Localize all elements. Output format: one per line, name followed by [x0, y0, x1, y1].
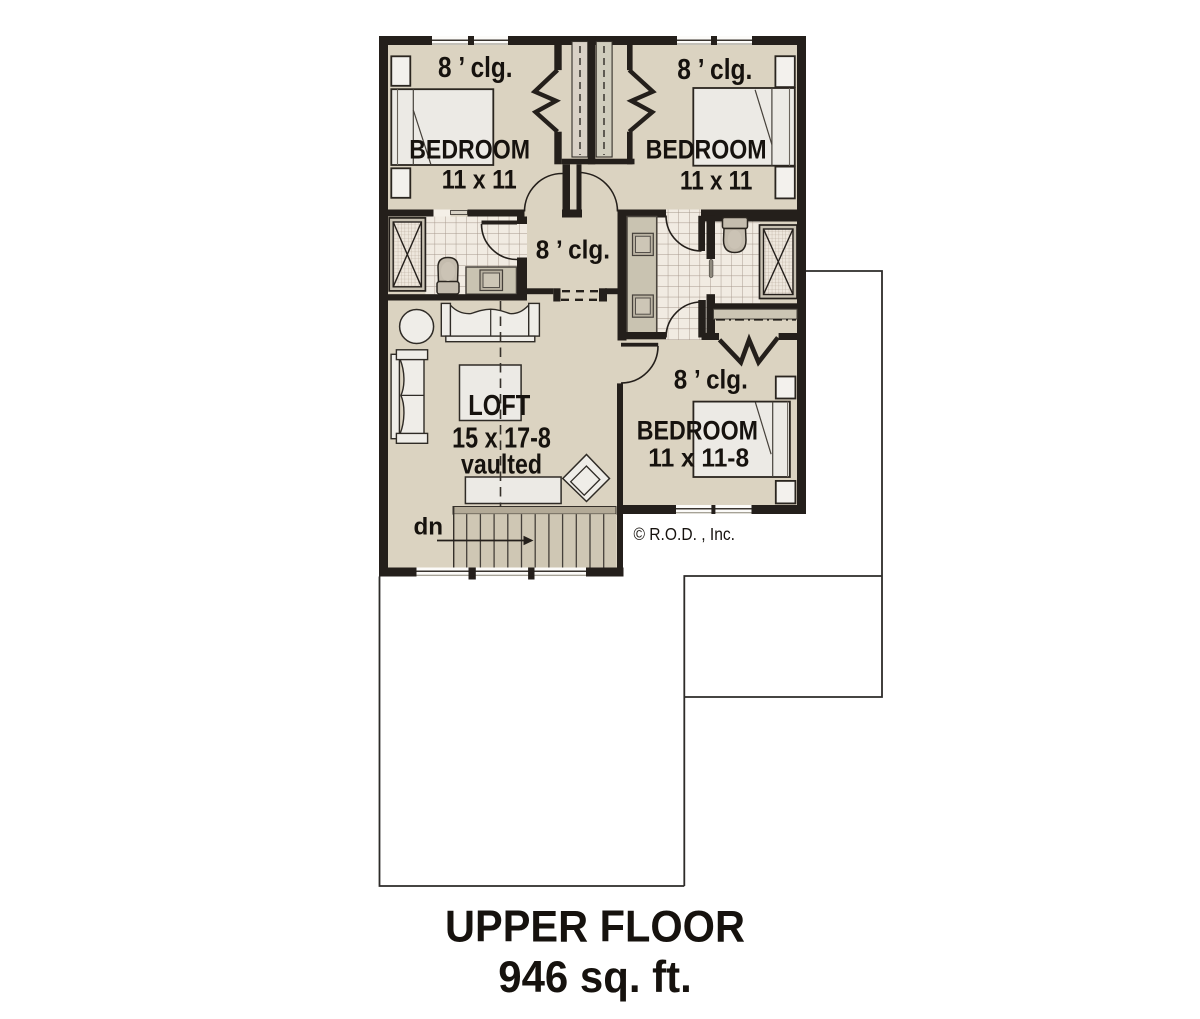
- svg-text:946 sq. ft.: 946 sq. ft.: [498, 953, 692, 1002]
- svg-text:vaulted: vaulted: [461, 449, 542, 480]
- svg-text:BEDROOM: BEDROOM: [646, 134, 767, 164]
- svg-text:© R.O.D. , Inc.: © R.O.D. , Inc.: [634, 524, 736, 544]
- svg-text:dn: dn: [414, 513, 444, 540]
- svg-text:BEDROOM: BEDROOM: [409, 134, 530, 164]
- svg-text:8 ’ clg.: 8 ’ clg.: [438, 52, 513, 84]
- svg-text:BEDROOM: BEDROOM: [637, 416, 758, 446]
- svg-text:8 ’ clg.: 8 ’ clg.: [677, 54, 752, 86]
- svg-text:11 x 11: 11 x 11: [680, 165, 752, 196]
- svg-text:UPPER FLOOR: UPPER FLOOR: [445, 903, 745, 952]
- svg-text:11 x 11-8: 11 x 11-8: [648, 445, 749, 473]
- svg-text:11 x 11: 11 x 11: [442, 163, 517, 194]
- svg-text:8 ’ clg.: 8 ’ clg.: [674, 365, 748, 395]
- svg-text:8 ’ clg.: 8 ’ clg.: [536, 234, 610, 264]
- svg-text:LOFT: LOFT: [468, 390, 530, 422]
